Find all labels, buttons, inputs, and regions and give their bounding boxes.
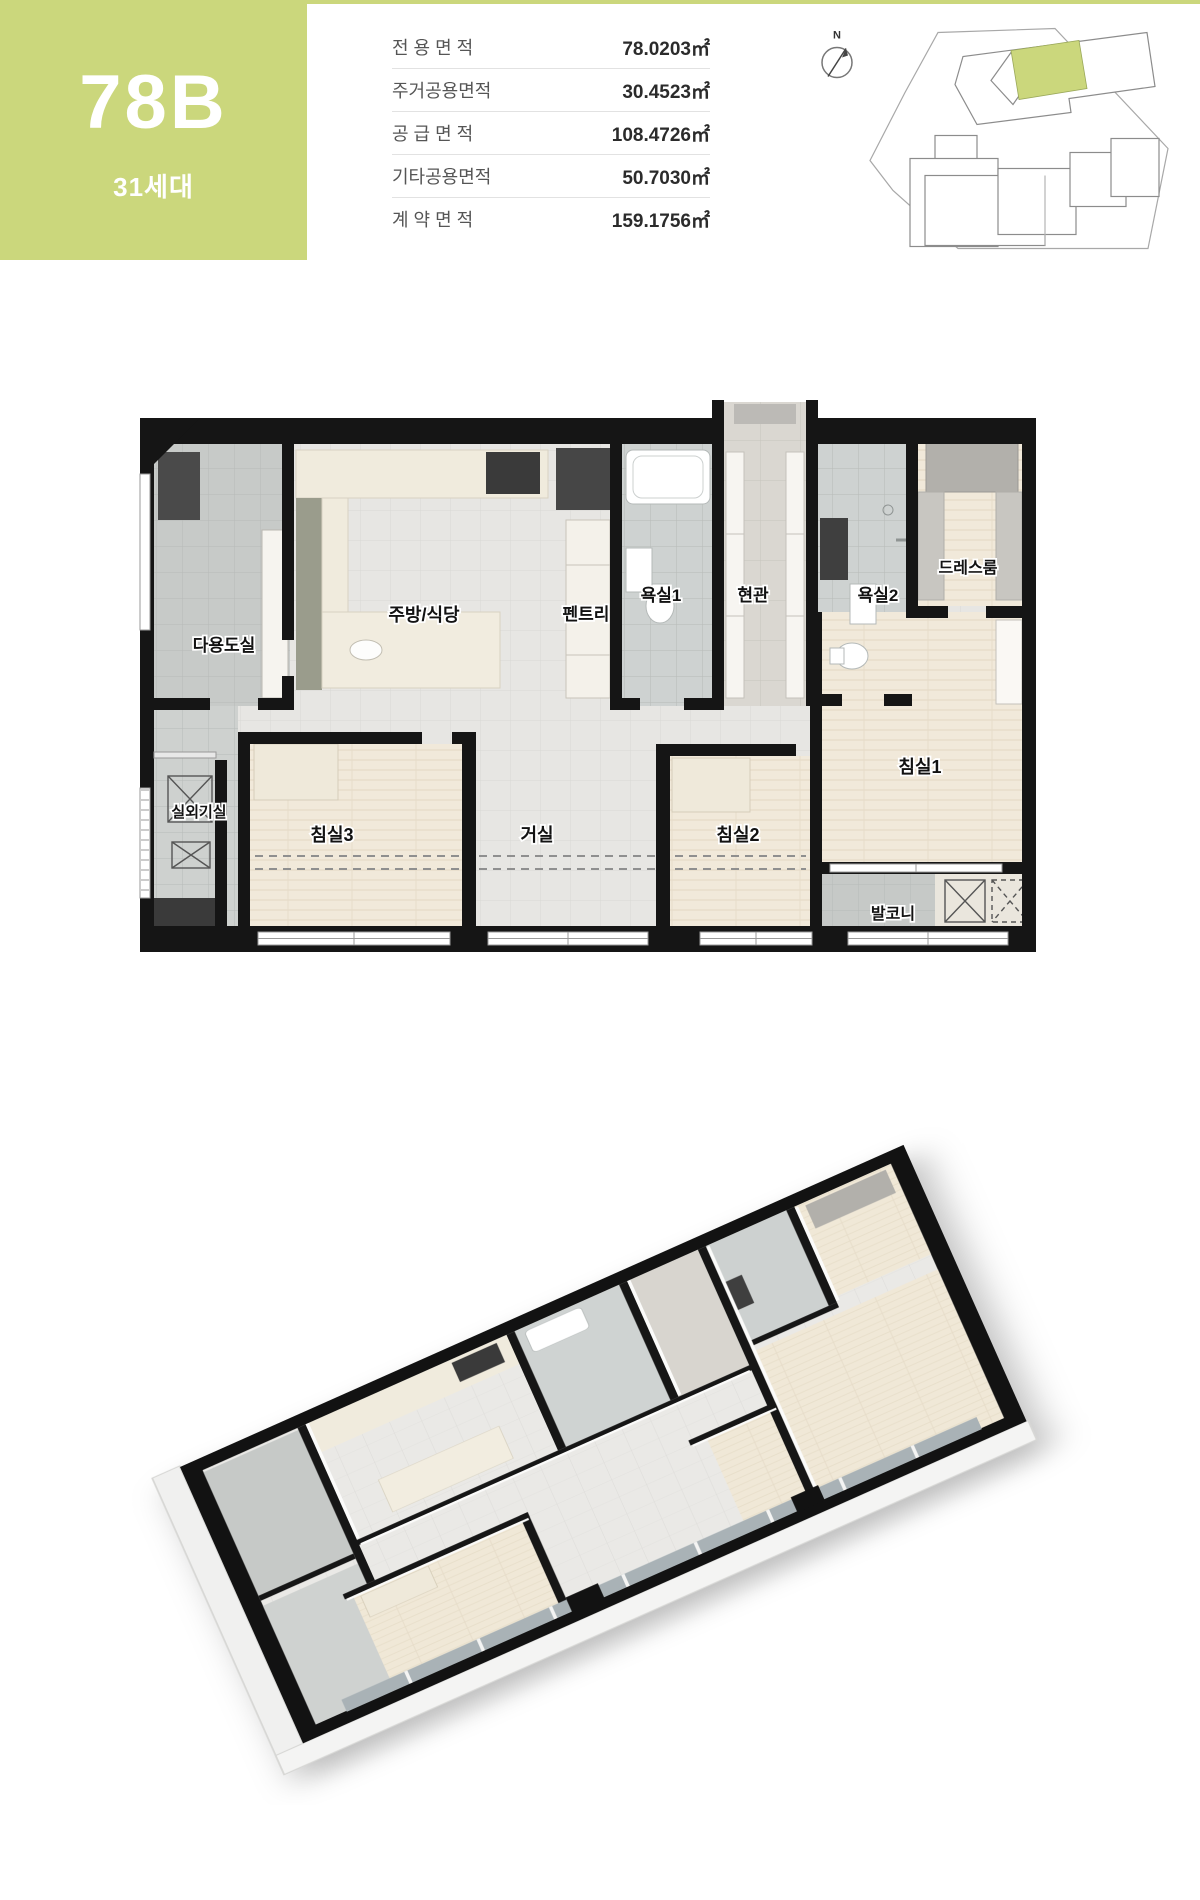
room-label-ac-room: 실외기실 bbox=[171, 803, 226, 821]
unit-type-title: 78B bbox=[79, 65, 227, 141]
room-label-kitchen: 주방/식당 bbox=[388, 605, 460, 625]
room-label-bedroom1: 침실1 bbox=[898, 757, 941, 777]
unit-type-badge: 78B 31세대 bbox=[0, 0, 307, 260]
room-label-pantry: 펜트리 bbox=[563, 605, 610, 624]
floor-plan-3d-isometric bbox=[90, 1075, 1100, 1805]
area-label: 기타공용면적 bbox=[392, 163, 491, 189]
room-label-living: 거실 bbox=[520, 825, 553, 845]
area-value: 50.7030㎡ bbox=[622, 163, 710, 190]
area-table-row: 계 약 면 적159.1756㎡ bbox=[392, 198, 710, 240]
floor-plan-2d: 다용도실주방/식당펜트리욕실1현관욕실2드레스룸실외기실침실3거실침실2침실1발… bbox=[130, 395, 1050, 970]
room-label-utility: 다용도실 bbox=[193, 636, 256, 655]
area-value: 108.4726㎡ bbox=[612, 120, 710, 147]
area-table-row: 공 급 면 적108.4726㎡ bbox=[392, 112, 710, 155]
area-label: 계 약 면 적 bbox=[392, 206, 473, 232]
room-label-bedroom2: 침실2 bbox=[716, 825, 759, 845]
compass-icon: N bbox=[822, 30, 852, 78]
area-label: 주거공용면적 bbox=[392, 77, 491, 103]
area-table-row: 전 용 면 적78.0203㎡ bbox=[392, 26, 710, 69]
building-lower bbox=[910, 136, 1159, 247]
room-label-bath1: 욕실1 bbox=[641, 586, 682, 605]
room-label-dressroom: 드레스룸 bbox=[939, 559, 998, 577]
site-key-plan: N bbox=[815, 18, 1185, 253]
area-value: 159.1756㎡ bbox=[612, 206, 710, 233]
room-label-bedroom3: 침실3 bbox=[310, 825, 353, 845]
isometric-unit bbox=[152, 1143, 1036, 1774]
area-table-row: 주거공용면적30.4523㎡ bbox=[392, 69, 710, 112]
highlighted-unit bbox=[1011, 41, 1087, 100]
area-label: 공 급 면 적 bbox=[392, 120, 473, 146]
area-label: 전 용 면 적 bbox=[392, 34, 473, 60]
room-label-bath2: 욕실2 bbox=[858, 586, 899, 605]
unit-household-count: 31세대 bbox=[113, 167, 194, 204]
floorplan-page: { "colors": { "accent_green": "#cbd77c",… bbox=[0, 0, 1200, 1900]
area-table-row: 기타공용면적50.7030㎡ bbox=[392, 155, 710, 198]
room-label-balcony: 발코니 bbox=[871, 905, 915, 923]
area-value: 30.4523㎡ bbox=[622, 77, 710, 104]
area-value: 78.0203㎡ bbox=[622, 34, 710, 61]
area-table: 전 용 면 적78.0203㎡주거공용면적30.4523㎡공 급 면 적108.… bbox=[392, 26, 710, 240]
room-label-entrance: 현관 bbox=[737, 586, 769, 605]
compass-n-label: N bbox=[833, 30, 841, 42]
